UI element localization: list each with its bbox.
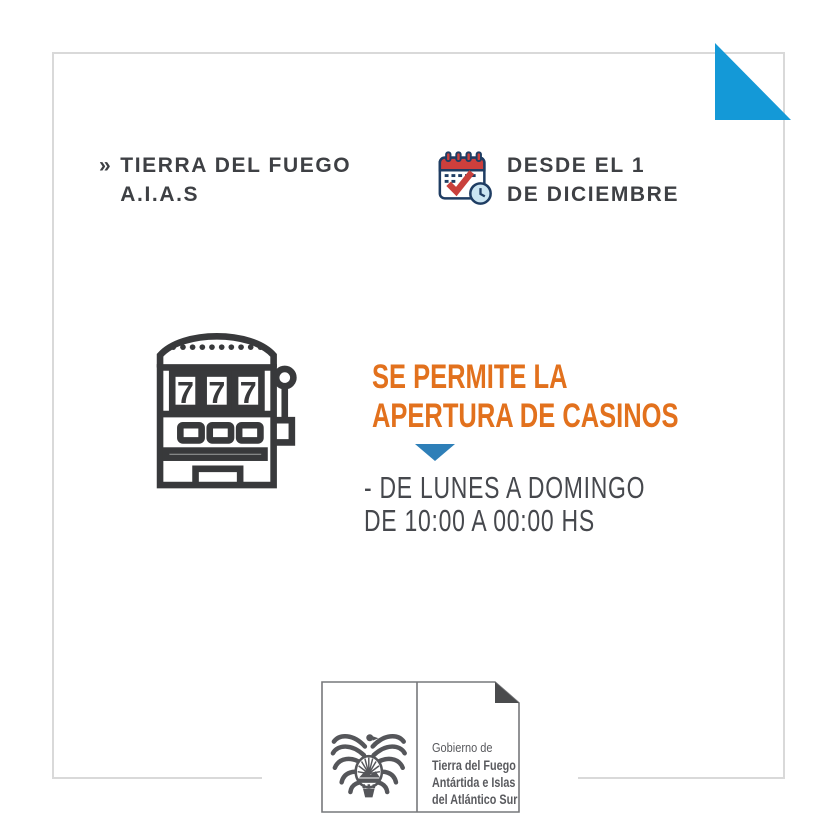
header-region: » TIERRA DEL FUEGO A.I.A.S — [99, 151, 351, 209]
schedule-line2: DE 10:00 A 00:00 HS — [364, 504, 595, 537]
schedule: - DE LUNES A DOMINGO DE 10:00 A 00:00 HS — [364, 471, 744, 537]
date-line2: DE DICIEMBRE — [507, 180, 679, 209]
org-line2: Tierra del Fuego — [432, 757, 516, 774]
slot-machine-icon: 7 7 7 — [156, 326, 302, 490]
region-title: TIERRA DEL FUEGO A.I.A.S — [120, 151, 351, 209]
region-title-line1: TIERRA DEL FUEGO — [120, 151, 351, 180]
headline-line2: APERTURA DE CASINOS — [372, 397, 679, 436]
org-line3: Antártida e Islas — [432, 774, 515, 791]
slot-reel-digit: 7 — [208, 376, 225, 410]
government-logo: Gobierno de Tierra del Fuego Antártida e… — [321, 681, 520, 813]
region-title-line2: A.I.A.S — [120, 180, 351, 209]
headline-line1: SE PERMITE LA — [372, 358, 568, 397]
triangle-down-icon — [415, 444, 455, 461]
date-line1: DESDE EL 1 — [507, 151, 679, 180]
calendar-check-icon — [435, 148, 495, 208]
logo-text: Gobierno de Tierra del Fuego Antártida e… — [432, 740, 539, 808]
org-line4: del Atlántico Sur — [432, 791, 517, 808]
schedule-line1: - DE LUNES A DOMINGO — [364, 471, 645, 504]
slot-reel-digit: 7 — [240, 376, 257, 410]
slot-reel-digit: 7 — [177, 376, 194, 410]
date-text: DESDE EL 1 DE DICIEMBRE — [507, 151, 679, 209]
chevron-icon: » — [99, 151, 112, 180]
header-date: DESDE EL 1 DE DICIEMBRE — [435, 151, 679, 209]
headline: SE PERMITE LA APERTURA DE CASINOS — [372, 358, 781, 436]
org-line1: Gobierno de — [432, 740, 493, 757]
announcement-graphic: » TIERRA DEL FUEGO A.I.A.S — [0, 0, 840, 840]
